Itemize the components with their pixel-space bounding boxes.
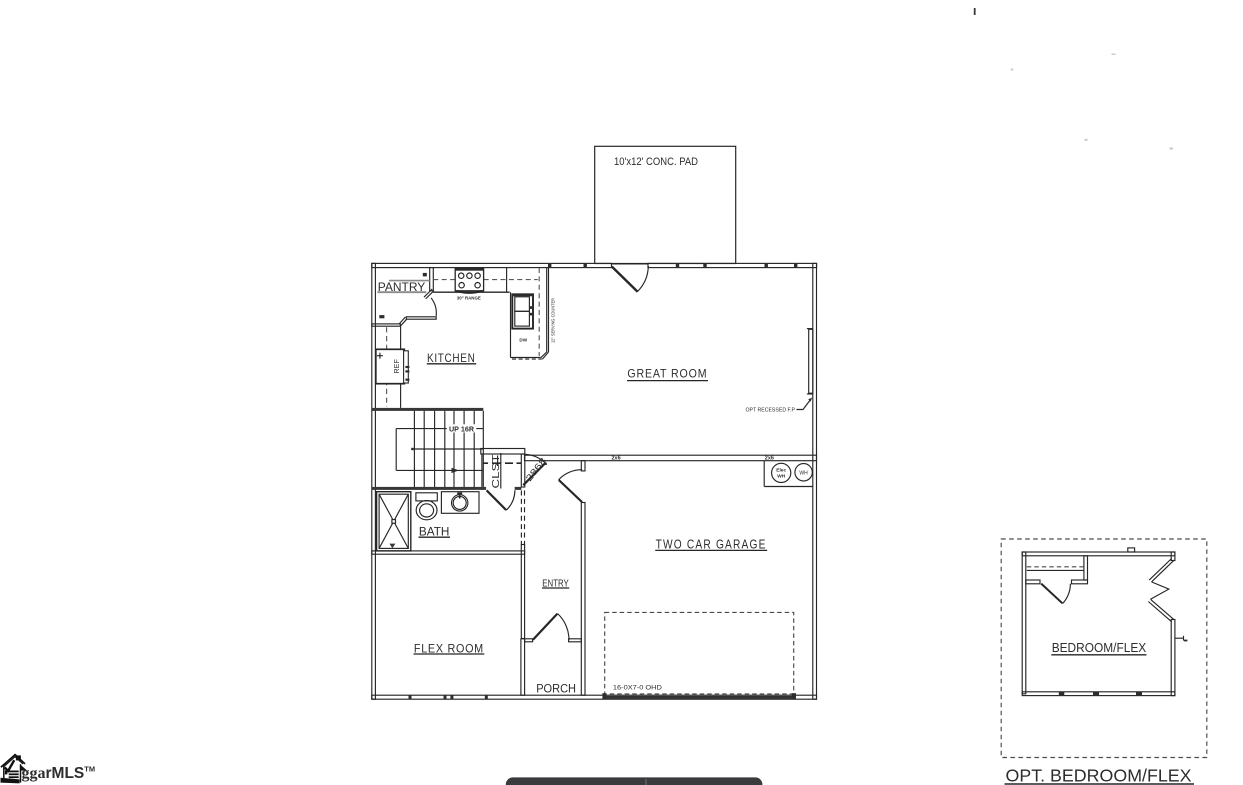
svg-text:10'x12' CONC. PAD: 10'x12' CONC. PAD bbox=[614, 156, 698, 168]
svg-text:OPT RECESSED F.P: OPT RECESSED F.P bbox=[746, 408, 796, 414]
svg-text:16-0X7-0 OHD: 16-0X7-0 OHD bbox=[613, 684, 663, 691]
svg-text:30" RANGE: 30" RANGE bbox=[457, 296, 481, 301]
svg-text:FLEX ROOM: FLEX ROOM bbox=[414, 641, 484, 655]
svg-text:OPT. BEDROOM/FLEX: OPT. BEDROOM/FLEX bbox=[1006, 765, 1192, 785]
svg-text:12" SERVING COUNTER: 12" SERVING COUNTER bbox=[551, 297, 556, 343]
svg-text:GREAT ROOM: GREAT ROOM bbox=[627, 367, 707, 381]
svg-text:2x6: 2x6 bbox=[765, 456, 774, 462]
svg-text:Elec: Elec bbox=[776, 468, 786, 474]
svg-text:REF: REF bbox=[394, 359, 401, 374]
svg-text:2868: 2868 bbox=[524, 456, 549, 483]
svg-text:ggarMLSTM: ggarMLSTM bbox=[22, 764, 96, 782]
svg-text:UP 16R: UP 16R bbox=[449, 425, 474, 434]
svg-text:WH: WH bbox=[777, 473, 786, 479]
svg-text:TWO CAR GARAGE: TWO CAR GARAGE bbox=[656, 537, 767, 552]
svg-text:PORCH: PORCH bbox=[536, 682, 576, 696]
svg-text:WH: WH bbox=[799, 470, 808, 476]
svg-text:2x6: 2x6 bbox=[612, 456, 621, 462]
svg-text:DW: DW bbox=[519, 337, 527, 342]
svg-text:BEDROOM/FLEX: BEDROOM/FLEX bbox=[1052, 640, 1147, 655]
